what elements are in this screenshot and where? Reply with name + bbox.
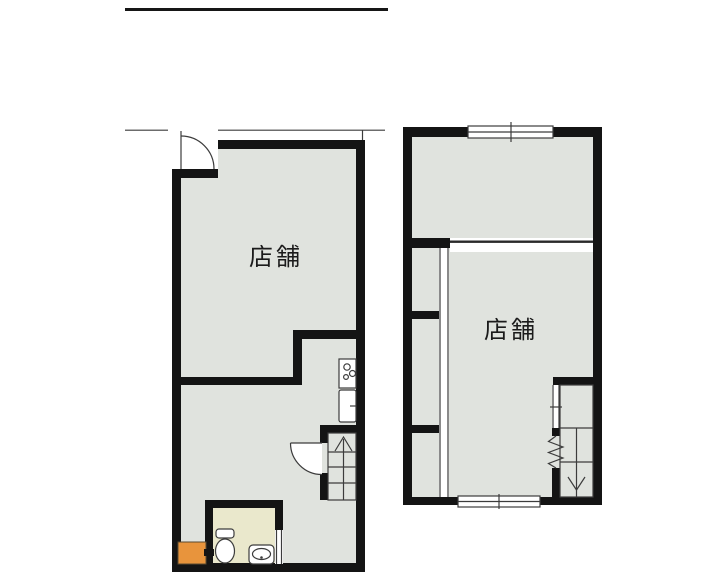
toilet-bowl [216, 539, 235, 563]
floor1-plan [168, 125, 365, 572]
kitchen-sink [339, 390, 356, 422]
floor2-wall-right [593, 127, 602, 505]
kitchen-wall-vertical [293, 330, 302, 385]
kitchen-wall-horizontal [293, 330, 363, 339]
closet-divider-upper [403, 311, 439, 319]
closet-divider-lower [403, 425, 439, 433]
water-heater [178, 542, 206, 564]
stair-wall-left-upper [320, 433, 328, 443]
toilet-tank [216, 529, 234, 538]
floor1-entrance-notch [168, 125, 218, 170]
sliding-door-track [439, 248, 449, 497]
stairwell-wall-low [552, 468, 560, 497]
hand-basin [249, 545, 274, 564]
room-label-floor2: 店舗 [484, 316, 538, 344]
window-bottom-icon [458, 494, 540, 509]
floor1-wall-entry-setback [172, 169, 218, 178]
open-partition-band [450, 238, 593, 252]
floor-plan-page: 店舗 店舗 [0, 0, 720, 576]
toilet-door [275, 530, 283, 564]
divider-wall [403, 238, 450, 248]
stairwell-wall-top [553, 377, 593, 385]
floor1-wall-right [356, 140, 365, 572]
floor-plan-drawing: 店舗 店舗 [0, 0, 720, 576]
toilet-wall-right [275, 500, 283, 530]
open-partition-line [450, 241, 593, 243]
stairwell-wall-mid [552, 428, 560, 436]
partition-wall [181, 377, 302, 385]
title-rule [125, 8, 388, 11]
floor1-wall-left [172, 169, 181, 572]
floor1-wall-top [218, 140, 365, 149]
stair-wall-top [320, 425, 365, 433]
room-label-floor1: 店舗 [249, 243, 303, 271]
toilet-wall-top [205, 500, 283, 508]
stair-wall-left-lower [320, 473, 328, 500]
toilet [216, 529, 235, 563]
water-heater-wall-tick [204, 549, 214, 556]
kitchen-stove [339, 359, 356, 388]
